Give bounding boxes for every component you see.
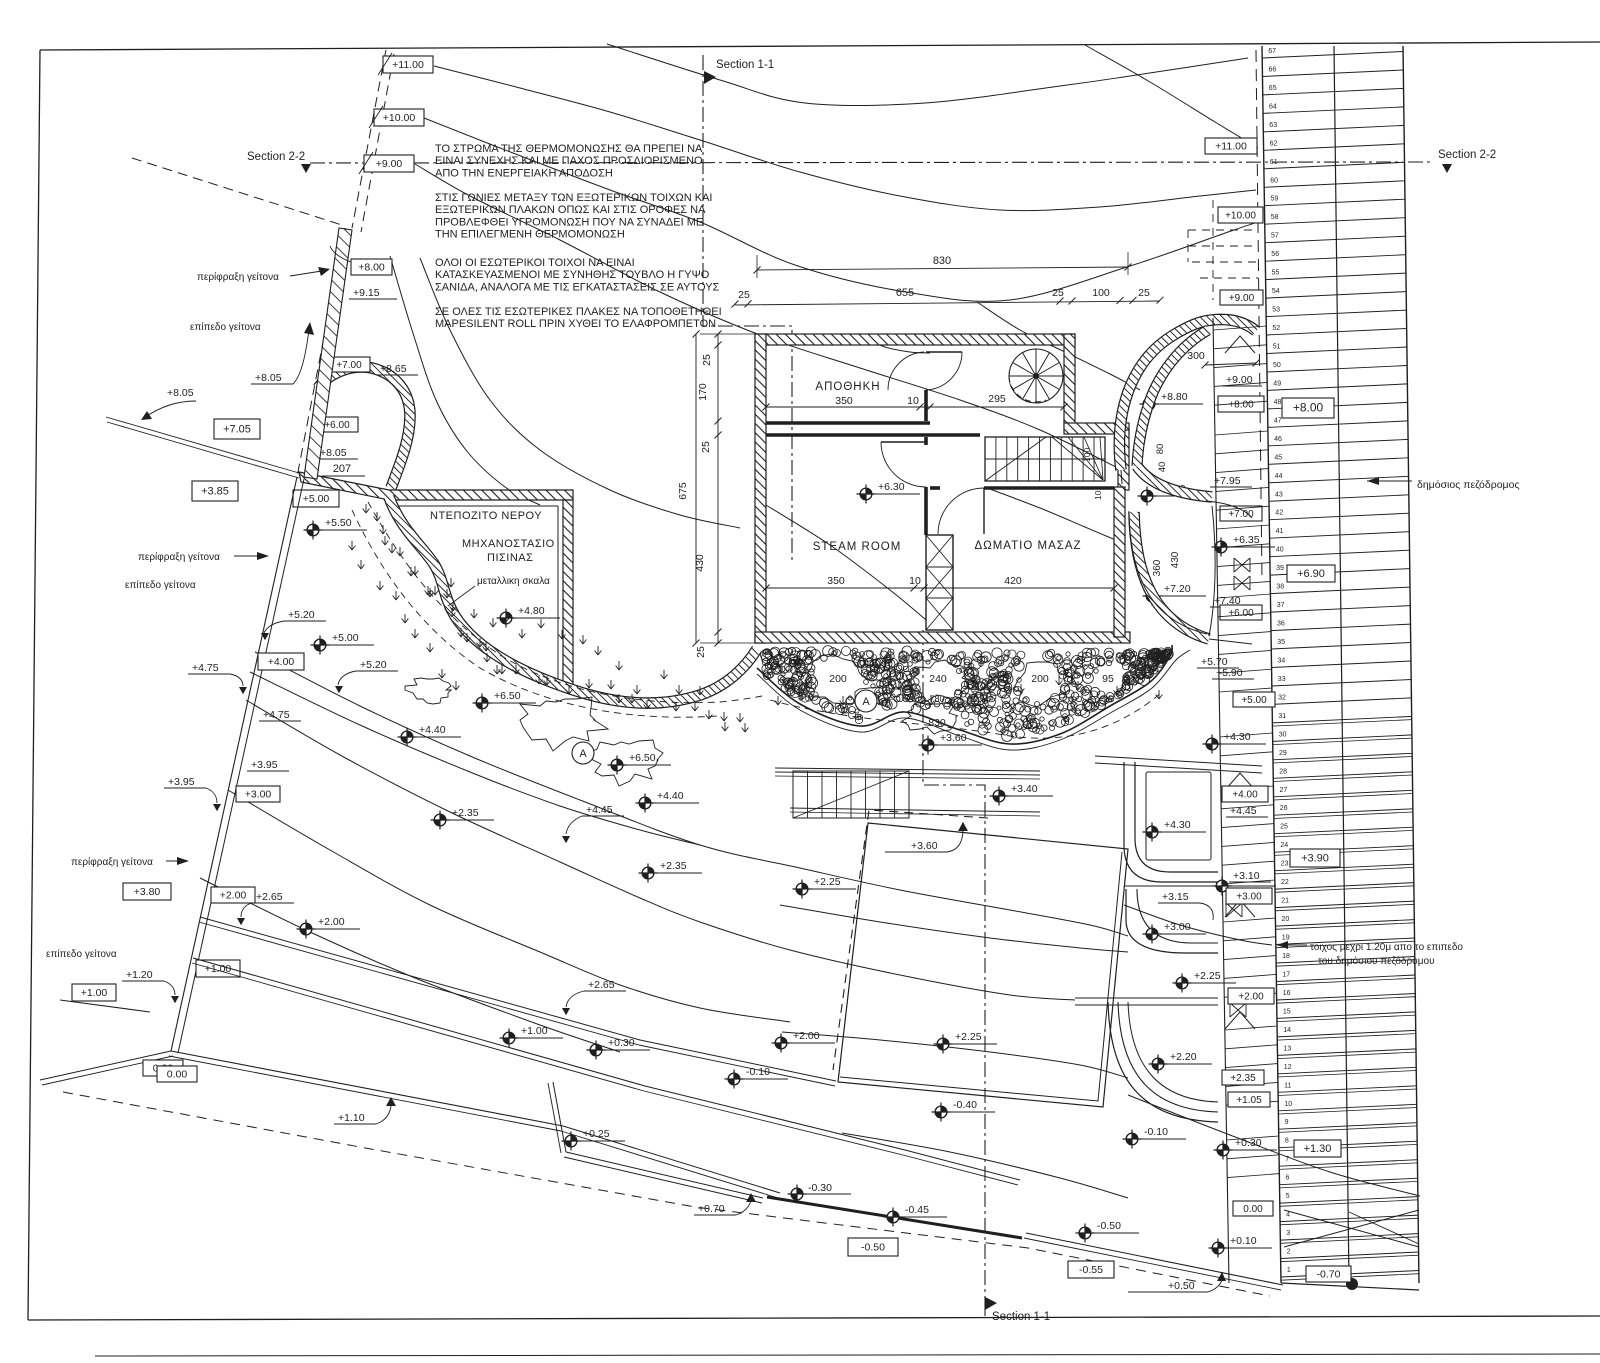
svg-text:+2.20: +2.20 xyxy=(1170,1051,1197,1063)
svg-text:+2.00: +2.00 xyxy=(793,1030,820,1042)
svg-text:48: 48 xyxy=(1274,399,1282,406)
svg-text:+2.35: +2.35 xyxy=(660,860,687,872)
svg-text:A: A xyxy=(862,696,870,708)
svg-text:+6.35: +6.35 xyxy=(1233,534,1260,546)
svg-text:+3.00: +3.00 xyxy=(1164,921,1191,933)
svg-text:39: 39 xyxy=(1276,565,1284,572)
svg-text:50: 50 xyxy=(1273,362,1281,369)
svg-text:34: 34 xyxy=(1278,658,1286,665)
svg-text:ΣΤΙΣ ΓΩΝΙΕΣ ΜΕΤΑΞΥ ΤΩΝ ΕΞΩΤΕΡΙ: ΣΤΙΣ ΓΩΝΙΕΣ ΜΕΤΑΞΥ ΤΩΝ ΕΞΩΤΕΡΙΚΩΝ ΤΟΙΧΩΝ… xyxy=(435,192,712,204)
svg-text:περίφραξη γείτονα: περίφραξη γείτονα xyxy=(197,271,279,283)
svg-text:ΔΩΜΑΤΙΟ ΜΑΣΑΖ: ΔΩΜΑΤΙΟ ΜΑΣΑΖ xyxy=(974,540,1081,552)
svg-text:-0.70: -0.70 xyxy=(1317,1269,1341,1281)
svg-text:+3.95: +3.95 xyxy=(251,759,278,771)
svg-text:+3.95: +3.95 xyxy=(168,776,195,788)
svg-text:+4.75: +4.75 xyxy=(192,662,219,674)
svg-text:επίπεδο γείτονα: επίπεδο γείτονα xyxy=(125,579,196,591)
svg-text:+5.50: +5.50 xyxy=(325,517,352,529)
svg-text:ΣΕ ΟΛΕΣ ΤΙΣ ΕΣΩΤΕΡΙΚΕΣ ΠΛΑΚΕΣ: ΣΕ ΟΛΕΣ ΤΙΣ ΕΣΩΤΕΡΙΚΕΣ ΠΛΑΚΕΣ ΝΑ ΤΟΠΟΘΕΤ… xyxy=(435,306,722,318)
svg-text:43: 43 xyxy=(1275,491,1283,498)
svg-text:δημόσιος πεζόδρομος: δημόσιος πεζόδρομος xyxy=(1417,479,1520,491)
svg-text:+2.25: +2.25 xyxy=(955,1031,982,1043)
svg-text:+2.00: +2.00 xyxy=(318,916,345,928)
svg-text:+8.05: +8.05 xyxy=(255,372,282,384)
svg-text:+4.30: +4.30 xyxy=(1224,731,1251,743)
svg-text:0.00: 0.00 xyxy=(1243,1204,1263,1215)
svg-text:+9.00: +9.00 xyxy=(1229,293,1255,304)
svg-text:+2.65: +2.65 xyxy=(588,979,615,991)
svg-text:25: 25 xyxy=(738,289,750,301)
svg-text:+0.10: +0.10 xyxy=(1230,1235,1257,1247)
svg-text:25: 25 xyxy=(695,646,707,658)
svg-text:+0.25: +0.25 xyxy=(583,1128,610,1140)
svg-text:+8.05: +8.05 xyxy=(320,447,347,459)
svg-text:+2.35: +2.35 xyxy=(452,807,479,819)
svg-text:+2.00: +2.00 xyxy=(1238,992,1264,1003)
svg-text:-0.50: -0.50 xyxy=(1097,1220,1121,1232)
svg-text:36: 36 xyxy=(1277,621,1285,628)
svg-text:200: 200 xyxy=(829,673,847,685)
svg-text:ΤΗΝ ΕΠΙΛΕΓΜΕΝΗ ΘΕΡΜΟΜΟΝΩΣΗ: ΤΗΝ ΕΠΙΛΕΓΜΕΝΗ ΘΕΡΜΟΜΟΝΩΣΗ xyxy=(435,229,625,241)
svg-text:+1.10: +1.10 xyxy=(338,1112,365,1124)
svg-text:26: 26 xyxy=(1280,805,1288,812)
svg-text:14: 14 xyxy=(1283,1027,1291,1034)
svg-text:ΣΑΝΙΔΑ, ΑΝΑΛΟΓΑ ΜΕ ΤΙΣ ΕΓΚΑΤΑΣ: ΣΑΝΙΔΑ, ΑΝΑΛΟΓΑ ΜΕ ΤΙΣ ΕΓΚΑΤΑΣΤΑΣΕΙΣ ΣΕ … xyxy=(435,281,720,293)
svg-text:ΕΞΩΤΕΡΙΚΩΝ ΠΛΑΚΩΝ ΟΠΩΣ ΚΑΙ ΣΤΙ: ΕΞΩΤΕΡΙΚΩΝ ΠΛΑΚΩΝ ΟΠΩΣ ΚΑΙ ΣΤΙΣ ΟΡΟΦΕΣ Ν… xyxy=(435,204,706,216)
svg-text:420: 420 xyxy=(1004,575,1022,587)
svg-text:25: 25 xyxy=(1103,694,1113,704)
svg-text:45: 45 xyxy=(1274,454,1282,461)
svg-text:360: 360 xyxy=(1152,559,1163,576)
svg-text:ΠΙΣΙΝΑΣ: ΠΙΣΙΝΑΣ xyxy=(487,552,533,564)
svg-text:6: 6 xyxy=(1286,1175,1290,1182)
svg-text:ΠΡΟΒΛΕΦΘΕΙ ΥΓΡΟΜΟΝΩΣΗ ΠΟΥ ΝΑ Σ: ΠΡΟΒΛΕΦΘΕΙ ΥΓΡΟΜΟΝΩΣΗ ΠΟΥ ΝΑ ΣΥΝΑΔΕΙ ΜΕ xyxy=(435,216,703,228)
svg-text:67: 67 xyxy=(1268,48,1276,55)
svg-text:25: 25 xyxy=(1052,287,1064,299)
svg-text:ΤΟ ΣΤΡΩΜΑ ΤΗΣ ΘΕΡΜΟΜΟΝΩΣΗΣ ΘΑ: ΤΟ ΣΤΡΩΜΑ ΤΗΣ ΘΕΡΜΟΜΟΝΩΣΗΣ ΘΑ ΠΡΕΠΕΙ ΝΑ xyxy=(435,143,703,155)
svg-text:ΟΛΟΙ ΟΙ ΕΣΩΤΕΡΙΚΟΙ ΤΟΙΧΟΙ ΝΑ Ε: ΟΛΟΙ ΟΙ ΕΣΩΤΕΡΙΚΟΙ ΤΟΙΧΟΙ ΝΑ ΕΙΝΑΙ xyxy=(435,257,635,269)
svg-text:περίφραξη γείτονα: περίφραξη γείτονα xyxy=(71,856,153,868)
svg-text:+10.00: +10.00 xyxy=(383,112,416,124)
svg-text:300: 300 xyxy=(1187,350,1205,362)
svg-text:+6.90: +6.90 xyxy=(1297,568,1325,580)
svg-text:2: 2 xyxy=(1287,1249,1291,1256)
svg-text:+3.00: +3.00 xyxy=(1236,892,1262,903)
svg-text:655: 655 xyxy=(896,287,914,299)
svg-text:1: 1 xyxy=(1287,1267,1291,1274)
svg-text:-0.45: -0.45 xyxy=(905,1204,929,1216)
svg-text:μεταλλικη σκαλα: μεταλλικη σκαλα xyxy=(477,576,550,587)
svg-text:-0.40: -0.40 xyxy=(953,1099,977,1111)
svg-text:+5.00: +5.00 xyxy=(332,632,359,644)
svg-text:830: 830 xyxy=(933,255,951,267)
svg-text:STEAM ROOM: STEAM ROOM xyxy=(813,541,902,553)
svg-text:+8.00: +8.00 xyxy=(1293,401,1324,415)
svg-text:+11.00: +11.00 xyxy=(1215,141,1247,153)
svg-text:7: 7 xyxy=(1285,1156,1289,1163)
svg-text:επίπεδο γείτονα: επίπεδο γείτονα xyxy=(190,321,261,333)
svg-text:0.00: 0.00 xyxy=(167,1069,188,1081)
svg-text:66: 66 xyxy=(1269,67,1277,74)
svg-text:+3.15: +3.15 xyxy=(1162,891,1189,903)
svg-text:350: 350 xyxy=(827,575,845,587)
svg-text:Section 1-1: Section 1-1 xyxy=(716,59,774,71)
svg-text:του δημόσιου πεζόδρομου: του δημόσιου πεζόδρομου xyxy=(1318,955,1435,967)
svg-text:100: 100 xyxy=(1082,448,1092,462)
svg-text:31: 31 xyxy=(1278,713,1286,720)
svg-text:-0.55: -0.55 xyxy=(1079,1264,1103,1276)
svg-text:+1.20: +1.20 xyxy=(126,969,153,981)
svg-text:+6.50: +6.50 xyxy=(629,752,656,764)
svg-text:95: 95 xyxy=(1102,673,1114,685)
svg-text:57: 57 xyxy=(1271,233,1279,240)
svg-text:32: 32 xyxy=(1278,694,1286,701)
svg-text:207: 207 xyxy=(333,463,351,475)
svg-text:ΑΠΟΘΗΚΗ: ΑΠΟΘΗΚΗ xyxy=(815,381,880,393)
svg-text:Section 1-1: Section 1-1 xyxy=(992,1311,1050,1323)
svg-text:780: 780 xyxy=(929,694,944,704)
svg-text:Section 2-2: Section 2-2 xyxy=(247,151,305,163)
svg-text:27: 27 xyxy=(1280,787,1288,794)
svg-text:+1.00: +1.00 xyxy=(521,1025,548,1037)
svg-text:17: 17 xyxy=(1282,972,1290,979)
svg-text:ΚΑΤΑΣΚΕΥΑΣΜΕΝΟΙ ΜΕ ΣΥΝΗΘΗΣ ΤΟΥ: ΚΑΤΑΣΚΕΥΑΣΜΕΝΟΙ ΜΕ ΣΥΝΗΘΗΣ ΤΟΥΒΛΟ Η ΓΥΨΟ xyxy=(435,269,710,281)
svg-text:56: 56 xyxy=(1271,251,1279,258)
svg-text:65: 65 xyxy=(1269,85,1277,92)
svg-text:+6.50: +6.50 xyxy=(494,690,521,702)
svg-text:8: 8 xyxy=(1285,1138,1289,1145)
svg-text:55: 55 xyxy=(1272,270,1280,277)
svg-text:52: 52 xyxy=(1272,325,1280,332)
svg-text:41: 41 xyxy=(1276,528,1284,535)
svg-text:170: 170 xyxy=(697,383,709,401)
svg-text:44: 44 xyxy=(1275,473,1283,480)
svg-text:-0.10: -0.10 xyxy=(1144,1126,1168,1138)
svg-text:+5.00: +5.00 xyxy=(303,493,330,505)
svg-text:+4.45: +4.45 xyxy=(1230,805,1257,817)
svg-text:-0.50: -0.50 xyxy=(861,1242,885,1254)
svg-text:38: 38 xyxy=(1276,584,1284,591)
svg-text:+3.60: +3.60 xyxy=(940,732,967,744)
svg-text:21: 21 xyxy=(1281,898,1289,905)
svg-text:+9.15: +9.15 xyxy=(353,287,380,299)
svg-text:+4.00: +4.00 xyxy=(1232,790,1258,801)
svg-text:675: 675 xyxy=(677,482,689,500)
svg-text:63: 63 xyxy=(1269,122,1277,129)
svg-text:25: 25 xyxy=(700,441,712,453)
svg-text:+10.00: +10.00 xyxy=(1225,211,1256,222)
svg-text:+3.85: +3.85 xyxy=(201,486,229,498)
svg-text:+4.80: +4.80 xyxy=(518,605,545,617)
svg-text:+2.25: +2.25 xyxy=(1194,970,1221,982)
svg-text:+2.00: +2.00 xyxy=(220,890,247,902)
svg-text:+3.40: +3.40 xyxy=(1011,783,1038,795)
svg-text:+4.45: +4.45 xyxy=(586,804,613,816)
svg-text:5: 5 xyxy=(1286,1193,1290,1200)
svg-text:+5.20: +5.20 xyxy=(288,609,315,621)
svg-text:40: 40 xyxy=(1157,462,1168,473)
svg-text:+3.80: +3.80 xyxy=(134,886,161,898)
svg-text:60: 60 xyxy=(1270,177,1278,184)
svg-text:+6.30: +6.30 xyxy=(878,481,905,493)
svg-text:Section 2-2: Section 2-2 xyxy=(1438,149,1496,161)
svg-text:42: 42 xyxy=(1275,510,1283,517)
svg-text:25: 25 xyxy=(701,354,713,366)
svg-text:51: 51 xyxy=(1273,344,1281,351)
svg-text:28: 28 xyxy=(1279,768,1287,775)
svg-text:+3.60: +3.60 xyxy=(911,840,938,852)
svg-text:58: 58 xyxy=(1271,214,1279,221)
svg-text:830: 830 xyxy=(928,717,946,729)
svg-text:+2.35: +2.35 xyxy=(1230,1073,1256,1084)
svg-text:+7.20: +7.20 xyxy=(1164,583,1191,595)
svg-text:+4.40: +4.40 xyxy=(419,724,446,736)
svg-text:περίφραξη γείτονα: περίφραξη γείτονα xyxy=(138,551,220,563)
svg-text:+0.70: +0.70 xyxy=(698,1203,725,1215)
svg-text:MAPESILENT ROLL ΠΡΙΝ ΧΥΘΕΙ ΤΟ: MAPESILENT ROLL ΠΡΙΝ ΧΥΘΕΙ ΤΟ ΕΛΑΦΡΟΜΠΕΤ… xyxy=(435,318,716,330)
svg-text:11: 11 xyxy=(1284,1082,1291,1089)
svg-text:+3.00: +3.00 xyxy=(245,789,272,801)
svg-text:10: 10 xyxy=(1284,1101,1292,1108)
svg-text:200: 200 xyxy=(1031,673,1049,685)
svg-text:33: 33 xyxy=(1278,676,1286,683)
svg-text:62: 62 xyxy=(1270,140,1278,147)
svg-text:3: 3 xyxy=(1286,1230,1290,1237)
svg-text:13: 13 xyxy=(1284,1045,1292,1052)
svg-text:295: 295 xyxy=(988,393,1006,405)
svg-text:10: 10 xyxy=(909,575,921,587)
svg-text:30: 30 xyxy=(1279,731,1287,738)
svg-text:+5.20: +5.20 xyxy=(360,659,387,671)
svg-text:+8.80: +8.80 xyxy=(1161,391,1188,403)
svg-text:+6.00: +6.00 xyxy=(324,420,350,431)
svg-text:25: 25 xyxy=(1280,824,1288,831)
svg-text:+1.30: +1.30 xyxy=(1304,1143,1332,1155)
svg-text:240: 240 xyxy=(929,673,947,685)
svg-text:+4.40: +4.40 xyxy=(657,790,684,802)
svg-text:80: 80 xyxy=(1155,444,1166,455)
svg-text:+8.05: +8.05 xyxy=(167,387,194,399)
svg-text:350: 350 xyxy=(835,395,853,407)
svg-text:430: 430 xyxy=(1170,551,1181,568)
svg-text:+4.00: +4.00 xyxy=(268,656,295,668)
svg-text:29: 29 xyxy=(1279,750,1287,757)
svg-text:-0.30: -0.30 xyxy=(808,1182,832,1194)
svg-text:+7.00: +7.00 xyxy=(336,360,362,371)
svg-text:+0.30: +0.30 xyxy=(1235,1137,1262,1149)
svg-text:+8.65: +8.65 xyxy=(380,363,407,375)
svg-text:+2.65: +2.65 xyxy=(256,891,283,903)
svg-text:+11.00: +11.00 xyxy=(392,59,424,71)
svg-text:37: 37 xyxy=(1277,602,1285,609)
svg-text:23: 23 xyxy=(1281,861,1289,868)
svg-text:ΜΗΧΑΝΟΣΤΑΣΙΟ: ΜΗΧΑΝΟΣΤΑΣΙΟ xyxy=(462,538,555,550)
svg-text:61: 61 xyxy=(1270,159,1278,166)
svg-text:ΕΙΝΑΙ ΣΥΝΕΧΗΣ ΚΑΙ ΜΕ ΠΑΧΟΣ ΠΡΟ: ΕΙΝΑΙ ΣΥΝΕΧΗΣ ΚΑΙ ΜΕ ΠΑΧΟΣ ΠΡΟΣΔΙΟΡΙΣΜΕΝ… xyxy=(435,155,703,167)
svg-text:24: 24 xyxy=(1280,842,1288,849)
svg-text:+7.95: +7.95 xyxy=(1214,475,1241,487)
svg-text:46: 46 xyxy=(1274,436,1282,443)
svg-text:A: A xyxy=(579,748,587,760)
svg-text:20: 20 xyxy=(1282,916,1290,923)
svg-text:+5.00: +5.00 xyxy=(1241,695,1267,706)
svg-text:18: 18 xyxy=(1282,953,1290,960)
svg-text:+3.90: +3.90 xyxy=(1301,853,1329,865)
svg-text:19: 19 xyxy=(1282,935,1290,942)
svg-text:100: 100 xyxy=(1092,287,1110,299)
svg-text:+6.00: +6.00 xyxy=(1228,608,1254,619)
svg-text:10: 10 xyxy=(1093,490,1103,500)
svg-text:+0.50: +0.50 xyxy=(1168,1280,1195,1292)
svg-text:54: 54 xyxy=(1272,288,1280,295)
svg-text:τοιχος μεχρι 1.20μ απο το επιπ: τοιχος μεχρι 1.20μ απο το επιπεδο xyxy=(1310,942,1463,953)
svg-text:+7.05: +7.05 xyxy=(223,424,251,436)
svg-text:επίπεδο γείτονα: επίπεδο γείτονα xyxy=(46,948,117,960)
svg-text:ΑΠΟ ΤΗΝ ΕΝΕΡΓΕΙΑΚΗ ΑΠΟΔΟΣΗ: ΑΠΟ ΤΗΝ ΕΝΕΡΓΕΙΑΚΗ ΑΠΟΔΟΣΗ xyxy=(435,167,613,179)
svg-text:15: 15 xyxy=(1283,1008,1291,1015)
svg-text:16: 16 xyxy=(1283,990,1291,997)
svg-text:64: 64 xyxy=(1269,103,1277,110)
svg-text:9: 9 xyxy=(1285,1119,1289,1126)
svg-text:+0.30: +0.30 xyxy=(608,1037,635,1049)
svg-text:+8.00: +8.00 xyxy=(1228,400,1254,411)
svg-text:47: 47 xyxy=(1274,417,1282,424)
svg-text:+4.30: +4.30 xyxy=(1164,819,1191,831)
svg-text:59: 59 xyxy=(1271,196,1279,203)
svg-text:+7.00: +7.00 xyxy=(1228,509,1254,520)
svg-text:25: 25 xyxy=(1138,287,1150,299)
svg-text:4: 4 xyxy=(1286,1212,1290,1219)
svg-text:+4.75: +4.75 xyxy=(263,709,290,721)
svg-text:+1.05: +1.05 xyxy=(1236,1095,1262,1106)
svg-text:+3.10: +3.10 xyxy=(1233,870,1260,882)
svg-text:ΝΤΕΠΟΖΙΤΟ ΝΕΡΟΥ: ΝΤΕΠΟΖΙΤΟ ΝΕΡΟΥ xyxy=(430,510,542,522)
svg-text:49: 49 xyxy=(1273,380,1281,387)
svg-text:10: 10 xyxy=(907,395,919,407)
svg-text:+1.00: +1.00 xyxy=(81,987,108,999)
svg-text:+9.00: +9.00 xyxy=(376,158,403,170)
svg-text:12: 12 xyxy=(1284,1064,1292,1071)
svg-text:53: 53 xyxy=(1272,307,1280,314)
svg-text:22: 22 xyxy=(1281,879,1289,886)
svg-text:+2.25: +2.25 xyxy=(814,876,841,888)
svg-text:+8.00: +8.00 xyxy=(358,262,385,274)
svg-text:35: 35 xyxy=(1277,639,1285,646)
svg-text:40: 40 xyxy=(1276,547,1284,554)
